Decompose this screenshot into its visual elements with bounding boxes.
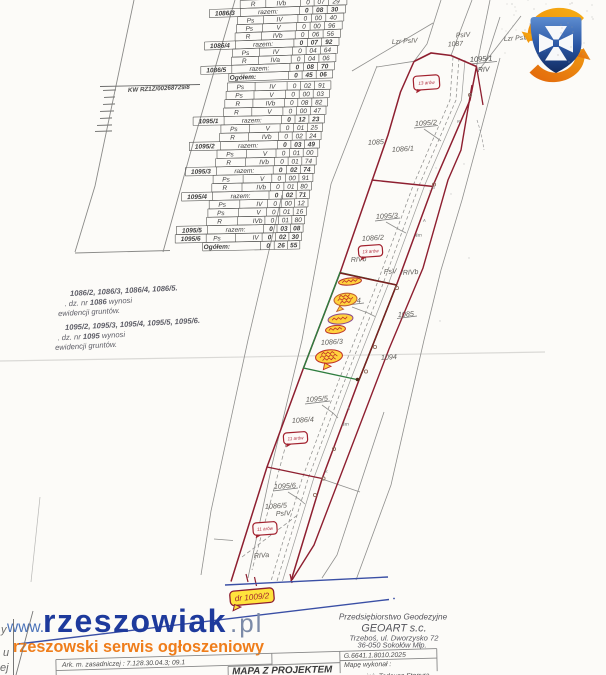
svg-text:0: 0: [294, 72, 298, 79]
svg-text:V: V: [276, 25, 281, 32]
svg-text:08: 08: [301, 100, 309, 107]
svg-text:23: 23: [311, 116, 320, 123]
svg-text:V: V: [266, 125, 271, 132]
svg-text:0: 0: [275, 192, 279, 199]
svg-text:0: 0: [269, 226, 273, 233]
svg-text:0: 0: [273, 201, 277, 208]
svg-text:rzeszowiak: rzeszowiak: [43, 603, 227, 639]
svg-text:08: 08: [307, 64, 315, 71]
svg-text:0: 0: [293, 83, 297, 90]
svg-text:08: 08: [316, 7, 324, 14]
svg-text:91: 91: [302, 175, 310, 182]
svg-text:1095/4: 1095/4: [187, 194, 207, 201]
svg-text:0: 0: [295, 64, 299, 71]
svg-text:Ps: Ps: [247, 17, 256, 24]
svg-text:1087: 1087: [448, 41, 464, 49]
svg-text:06: 06: [322, 55, 330, 62]
svg-text:IVb: IVb: [273, 33, 283, 40]
svg-text:Ogółem:: Ogółem:: [204, 244, 231, 252]
svg-text:74: 74: [303, 167, 311, 174]
svg-text:71: 71: [299, 192, 307, 199]
svg-text:Ps: Ps: [236, 84, 244, 91]
svg-text:07: 07: [311, 39, 319, 46]
svg-text:01: 01: [293, 150, 301, 157]
svg-text:0: 0: [287, 117, 291, 124]
svg-text:08: 08: [293, 225, 301, 232]
svg-text:razem:: razem:: [234, 168, 254, 175]
svg-text:1086/5: 1086/5: [206, 67, 226, 75]
svg-text:74: 74: [305, 158, 313, 165]
svg-text:IVb: IVb: [256, 184, 266, 191]
svg-text:R: R: [217, 219, 222, 226]
svg-text:96: 96: [328, 23, 336, 30]
svg-text:01: 01: [282, 217, 290, 224]
svg-text:00: 00: [300, 108, 308, 115]
svg-text:RIVa: RIVa: [254, 552, 270, 560]
svg-text:K: K: [325, 469, 328, 474]
svg-text:29: 29: [331, 0, 340, 5]
svg-text:.pl: .pl: [230, 608, 263, 638]
svg-text:1095/3: 1095/3: [191, 168, 211, 175]
svg-text:R: R: [234, 109, 239, 116]
svg-text:36-050 Sokołów Młp.: 36-050 Sokołów Młp.: [357, 641, 426, 650]
svg-text:0: 0: [291, 91, 295, 98]
svg-text:4m: 4m: [342, 422, 349, 428]
svg-text:u: u: [3, 647, 9, 659]
svg-text:R: R: [242, 58, 247, 65]
svg-text:rzeszowski serwis ogłoszeniowy: rzeszowski serwis ogłoszeniowy: [13, 638, 264, 656]
svg-text:04: 04: [309, 47, 317, 54]
svg-text:47: 47: [314, 108, 322, 115]
svg-text:00: 00: [284, 200, 292, 207]
svg-text:16: 16: [296, 209, 304, 216]
svg-text:V: V: [260, 176, 265, 183]
svg-text:0: 0: [286, 125, 290, 132]
svg-text:1094: 1094: [381, 352, 398, 362]
svg-text:IVb: IVb: [262, 134, 272, 141]
svg-text:07: 07: [317, 0, 325, 6]
svg-text:V: V: [269, 92, 274, 99]
svg-text:PsV: PsV: [384, 268, 399, 276]
svg-text:Ps: Ps: [222, 177, 230, 184]
svg-text:G.6641.1.8010.2025: G.6641.1.8010.2025: [344, 652, 406, 660]
svg-text:1086/3: 1086/3: [321, 337, 343, 347]
svg-text:IV: IV: [273, 49, 280, 56]
svg-text:92: 92: [325, 39, 333, 46]
svg-text:A: A: [422, 218, 426, 223]
svg-text:IV: IV: [276, 16, 283, 23]
svg-text:70: 70: [321, 63, 329, 70]
svg-text:Ps: Ps: [245, 25, 254, 32]
svg-text:00: 00: [289, 175, 297, 182]
svg-text:26: 26: [276, 242, 285, 249]
svg-text:00: 00: [306, 150, 314, 157]
svg-text:0: 0: [288, 108, 292, 115]
svg-text:24: 24: [308, 133, 317, 140]
svg-text:razem:: razem:: [249, 65, 269, 73]
svg-text:0: 0: [297, 56, 301, 63]
svg-text:IV: IV: [269, 84, 276, 91]
svg-text:V: V: [267, 109, 272, 116]
svg-text:00: 00: [313, 23, 321, 30]
svg-text:/RIVb: /RIVb: [400, 269, 419, 277]
svg-text:0: 0: [301, 32, 305, 39]
svg-text:02: 02: [295, 133, 303, 140]
svg-text:A: A: [346, 406, 350, 411]
svg-text:MAPA Z PROJEKTEM: MAPA Z PROJEKTEM: [232, 664, 333, 675]
svg-text:30: 30: [331, 6, 339, 13]
svg-text:1095/1: 1095/1: [199, 118, 219, 125]
svg-text:01: 01: [287, 184, 295, 191]
svg-text:0: 0: [270, 218, 274, 225]
svg-text:IVb: IVb: [259, 159, 269, 166]
svg-text:1095/2, 1095/3, 1095/4, 1095/5: 1095/2, 1095/3, 1095/4, 1095/5, 1095/6.: [65, 316, 200, 332]
svg-text:0: 0: [268, 234, 272, 241]
svg-text:03: 03: [280, 226, 288, 233]
svg-text:1086/3: 1086/3: [215, 10, 235, 18]
svg-text:4m: 4m: [415, 233, 422, 239]
svg-text:razem:: razem:: [230, 193, 250, 200]
svg-text:40: 40: [329, 14, 337, 21]
svg-text:V: V: [263, 151, 268, 158]
svg-text:Ogółem:: Ogółem:: [230, 74, 257, 82]
svg-text:0: 0: [303, 16, 307, 23]
svg-text:12: 12: [298, 116, 306, 123]
svg-text:Ps: Ps: [218, 202, 226, 209]
svg-text:1086/2: 1086/2: [362, 233, 384, 243]
svg-text:0: 0: [282, 150, 286, 157]
svg-text:0: 0: [305, 7, 309, 14]
svg-text:1086/4: 1086/4: [292, 415, 314, 425]
svg-text:82: 82: [315, 99, 323, 106]
svg-text:Ps: Ps: [235, 93, 243, 100]
svg-text:0: 0: [276, 184, 280, 191]
svg-text:razem:: razem:: [238, 142, 258, 149]
svg-text:PsIV: PsIV: [276, 510, 293, 518]
svg-text:ej: ej: [0, 662, 9, 674]
svg-text:0: 0: [279, 167, 283, 174]
svg-text:02: 02: [304, 83, 312, 90]
svg-text:R: R: [235, 101, 240, 108]
svg-text:0: 0: [306, 0, 310, 6]
svg-text:razem:: razem:: [225, 226, 245, 233]
svg-text:02: 02: [279, 234, 287, 241]
svg-text:PsIV: PsIV: [456, 32, 472, 40]
svg-text:Mapę wykonał :: Mapę wykonał :: [344, 661, 391, 669]
svg-text:1086/5: 1086/5: [265, 501, 288, 511]
svg-text:0: 0: [280, 159, 284, 166]
svg-text:55: 55: [290, 242, 298, 249]
svg-text:1086/1: 1086/1: [392, 144, 414, 154]
svg-text:0: 0: [284, 133, 288, 140]
svg-text:R: R: [457, 119, 460, 124]
svg-text:0: 0: [272, 209, 276, 216]
svg-text:0: 0: [290, 100, 294, 107]
svg-text:03: 03: [316, 91, 324, 98]
svg-text:razem:: razem:: [242, 117, 262, 124]
svg-text:0: 0: [277, 175, 281, 182]
svg-text:RIV: RIV: [478, 66, 491, 74]
svg-text:12: 12: [297, 200, 305, 207]
svg-text:06: 06: [312, 31, 320, 38]
svg-text:ewidencji gruntów.: ewidencji gruntów.: [58, 306, 120, 318]
svg-text:02: 02: [290, 167, 298, 174]
svg-text:01: 01: [291, 158, 299, 165]
svg-text:64: 64: [324, 47, 332, 54]
svg-text:R: R: [226, 160, 231, 167]
svg-text:R: R: [230, 135, 235, 142]
svg-text:80: 80: [300, 183, 308, 190]
svg-text:IVa: IVa: [270, 57, 280, 64]
svg-text:03: 03: [294, 142, 302, 149]
svg-text:1095/6: 1095/6: [181, 236, 201, 243]
svg-text:06: 06: [320, 71, 328, 78]
svg-text:01: 01: [283, 209, 291, 216]
svg-text:Ps: Ps: [226, 151, 234, 158]
svg-text:49: 49: [307, 141, 316, 148]
svg-text:0: 0: [302, 24, 306, 31]
svg-text:0: 0: [298, 48, 302, 55]
svg-text:01: 01: [297, 125, 305, 132]
svg-text:D: D: [469, 92, 472, 97]
svg-text:00: 00: [315, 15, 323, 22]
svg-text:V: V: [256, 209, 261, 216]
svg-text:1095/1: 1095/1: [470, 54, 493, 64]
svg-text:30: 30: [291, 234, 299, 241]
svg-text:80: 80: [294, 217, 302, 224]
svg-text:Lzr PsIV: Lzr PsIV: [392, 37, 420, 46]
svg-text:IVb: IVb: [266, 100, 276, 107]
svg-text:Ps: Ps: [217, 210, 225, 217]
svg-text:Ps: Ps: [230, 126, 238, 133]
svg-text:ewidencji gruntów.: ewidencji gruntów.: [55, 340, 117, 352]
svg-text:0: 0: [283, 142, 287, 149]
svg-text:R: R: [246, 34, 251, 41]
svg-text:IV: IV: [253, 235, 260, 242]
svg-text:45: 45: [304, 72, 313, 79]
svg-text:R: R: [222, 185, 227, 192]
svg-text:1095/2: 1095/2: [195, 143, 215, 150]
svg-text:Ps: Ps: [213, 235, 221, 242]
svg-text:IVb: IVb: [276, 0, 286, 7]
svg-text:IVb: IVb: [253, 218, 263, 225]
svg-text:www.: www.: [6, 619, 44, 636]
svg-text:Ps: Ps: [242, 50, 251, 57]
svg-text:02: 02: [286, 192, 294, 199]
svg-text:91: 91: [318, 83, 326, 90]
svg-text:Przedsiębiorstwo Geodezyjne: Przedsiębiorstwo Geodezyjne: [339, 613, 448, 622]
svg-text:0: 0: [299, 40, 303, 47]
svg-text:56: 56: [327, 31, 335, 38]
svg-text:1086/4: 1086/4: [210, 42, 230, 50]
svg-text:04: 04: [308, 56, 316, 63]
svg-text:00: 00: [302, 91, 310, 98]
svg-text:0: 0: [266, 243, 270, 250]
svg-text:R: R: [251, 1, 256, 8]
svg-text:1085: 1085: [368, 137, 386, 147]
svg-text:25: 25: [310, 125, 319, 132]
svg-text:1095/5: 1095/5: [182, 227, 202, 234]
svg-text:IV: IV: [256, 201, 263, 208]
